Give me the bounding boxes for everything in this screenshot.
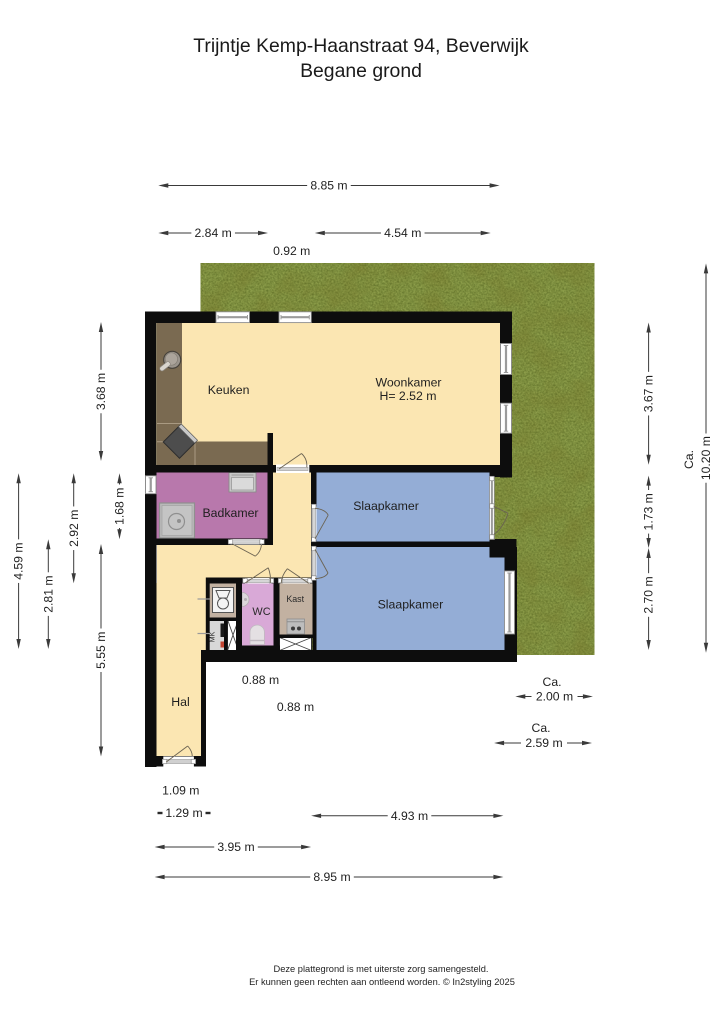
svg-text:3.68 m: 3.68 m bbox=[94, 373, 108, 410]
svg-text:5.55 m: 5.55 m bbox=[94, 632, 108, 669]
svg-text:4.59 m: 4.59 m bbox=[12, 543, 26, 580]
svg-text:Ca.: Ca. bbox=[532, 721, 551, 735]
svg-text:Trijntje Kemp-Haanstraat 94, B: Trijntje Kemp-Haanstraat 94, Beverwijk bbox=[193, 35, 529, 57]
svg-text:1.29 m: 1.29 m bbox=[165, 806, 202, 820]
svg-text:2.81 m: 2.81 m bbox=[41, 575, 55, 612]
svg-text:2.70 m: 2.70 m bbox=[642, 576, 656, 613]
svg-text:4.93 m: 4.93 m bbox=[391, 809, 428, 823]
svg-text:Badkamer: Badkamer bbox=[202, 506, 258, 520]
svg-text:Slaapkamer: Slaapkamer bbox=[378, 598, 444, 612]
svg-text:8.95 m: 8.95 m bbox=[313, 870, 350, 884]
svg-text:Slaapkamer: Slaapkamer bbox=[353, 499, 419, 513]
svg-text:Woonkamer: Woonkamer bbox=[375, 376, 441, 390]
svg-text:H= 2.52 m: H= 2.52 m bbox=[379, 389, 436, 403]
svg-text:2.59 m: 2.59 m bbox=[525, 736, 562, 750]
svg-text:Kast: Kast bbox=[286, 594, 304, 604]
svg-text:Hal: Hal bbox=[171, 695, 189, 709]
svg-text:2.00 m: 2.00 m bbox=[536, 690, 573, 704]
svg-text:Er kunnen geen rechten aan ont: Er kunnen geen rechten aan ontleend word… bbox=[249, 977, 515, 987]
svg-text:WC: WC bbox=[252, 606, 270, 618]
svg-text:0.92 m: 0.92 m bbox=[273, 244, 310, 258]
svg-text:2.92 m: 2.92 m bbox=[67, 510, 81, 547]
svg-text:3.67 m: 3.67 m bbox=[642, 375, 656, 412]
svg-text:1.09 m: 1.09 m bbox=[162, 784, 199, 798]
svg-text:Ca.: Ca. bbox=[682, 450, 696, 469]
svg-text:Begane grond: Begane grond bbox=[300, 60, 422, 82]
svg-text:0.88 m: 0.88 m bbox=[277, 700, 314, 714]
svg-text:2.84 m: 2.84 m bbox=[195, 226, 232, 240]
svg-text:Keuken: Keuken bbox=[208, 383, 250, 397]
svg-text:8.85 m: 8.85 m bbox=[310, 179, 347, 193]
svg-text:0.88 m: 0.88 m bbox=[242, 673, 279, 687]
svg-text:Ca.: Ca. bbox=[543, 675, 562, 689]
svg-text:10.20 m: 10.20 m bbox=[699, 436, 713, 480]
svg-text:3.95 m: 3.95 m bbox=[217, 840, 254, 854]
svg-text:MK: MK bbox=[210, 631, 217, 642]
svg-text:Deze plattegrond is met uiters: Deze plattegrond is met uiterste zorg sa… bbox=[274, 964, 489, 974]
svg-text:1.73 m: 1.73 m bbox=[642, 493, 656, 530]
svg-text:1.68 m: 1.68 m bbox=[113, 488, 127, 525]
svg-text:4.54 m: 4.54 m bbox=[384, 226, 421, 240]
